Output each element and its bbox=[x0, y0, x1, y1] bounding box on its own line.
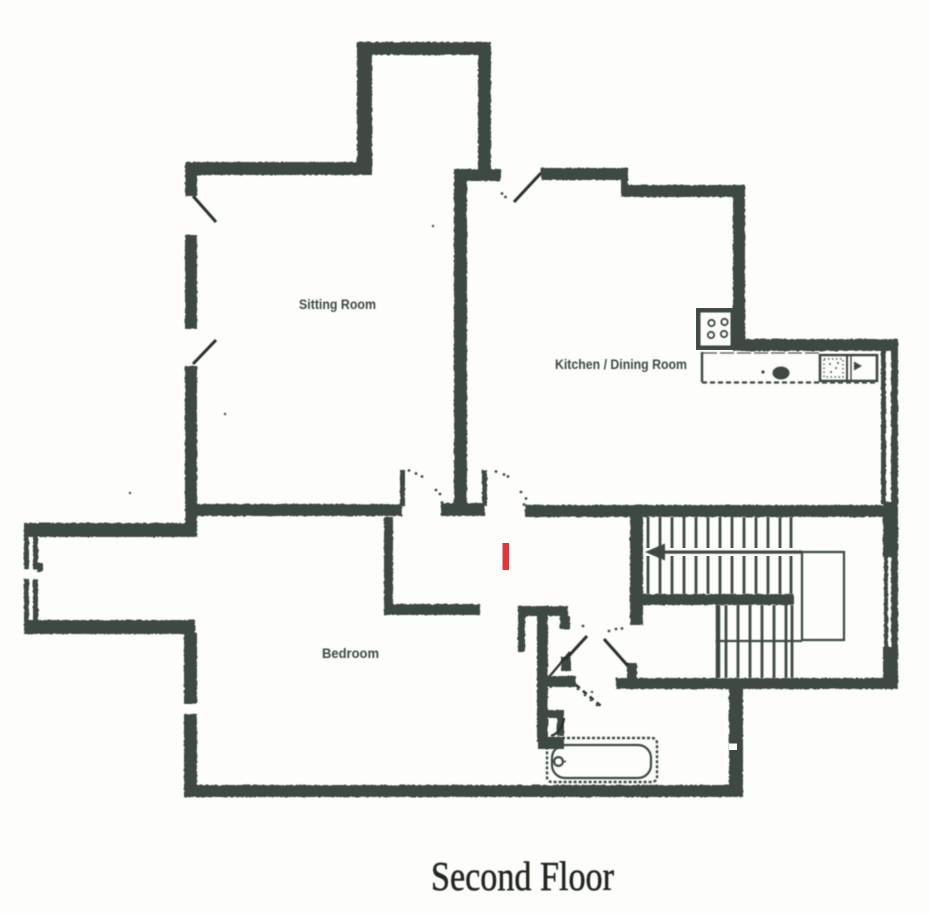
svg-text:Bedroom: Bedroom bbox=[322, 646, 379, 661]
svg-text:Second Floor: Second Floor bbox=[431, 853, 614, 899]
svg-text:Kitchen / Dining Room: Kitchen / Dining Room bbox=[555, 357, 687, 372]
svg-text:Sitting Room: Sitting Room bbox=[299, 297, 376, 312]
